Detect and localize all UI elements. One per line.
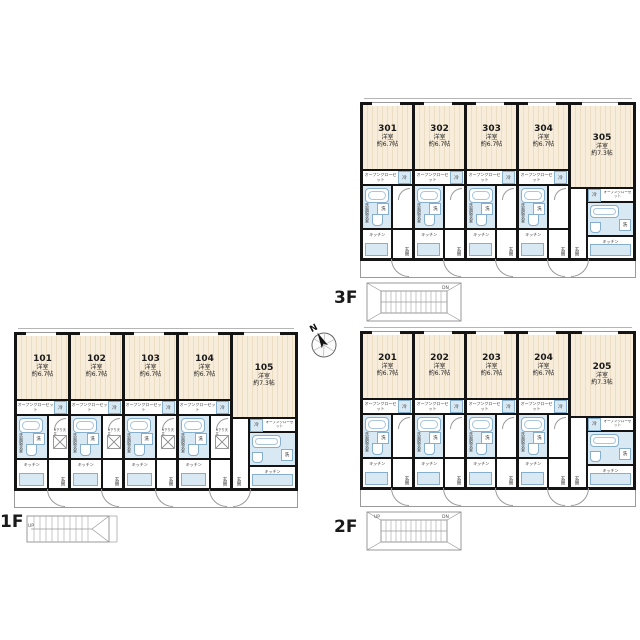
toilet: [424, 443, 435, 455]
unit-lower-half: 玄関 冷 オープンクローゼット 洗 キッチン: [571, 189, 633, 258]
closet-strip: オープンクローゼット 冷: [519, 400, 568, 415]
window: [582, 331, 618, 335]
refrigerator-box: 冷: [588, 418, 601, 431]
washer-label: 洗: [433, 435, 438, 441]
kitchen-row: キッチン 玄関: [519, 459, 568, 487]
open-closet-label: オープンクローゼット: [467, 173, 502, 181]
refrigerator-box: 冷: [450, 400, 463, 413]
refrigerator-box: 冷: [502, 400, 515, 413]
window: [528, 331, 556, 335]
bath-row: 洗面脱衣室 洗 ※下り天井: [467, 186, 516, 230]
kitchen-counter: [417, 243, 440, 256]
kitchen-row: キッチン 玄関: [17, 460, 68, 488]
refrigerator-label: 冷: [402, 175, 407, 181]
washroom-label: 洗面脱衣室: [364, 432, 370, 452]
building-2f: 201 洋室 約6.7帖 オープンクローゼット 冷 洗面脱衣室 洗 ※下り天井 …: [360, 331, 636, 490]
unit-corner: 205 洋室 約7.3帖 玄関 冷 オープンクローゼット 洗 キッ: [571, 334, 633, 487]
entrance-label: 玄関: [59, 477, 65, 486]
closet-strip: オープンクローゼット 冷: [519, 171, 568, 186]
open-closet-label: オープンクローゼット: [71, 403, 108, 411]
closet-strip: オープンクローゼット 冷: [125, 401, 176, 416]
refrigerator-label: 冷: [58, 405, 63, 411]
living-room: 103 洋室 約6.7帖: [125, 335, 176, 401]
x-box: [107, 435, 121, 449]
kitchen-label: キッチン: [17, 462, 47, 468]
unit-size: 約7.3帖: [591, 380, 613, 387]
unit-size: 約6.7帖: [140, 372, 162, 379]
unit: 301 洋室 約6.7帖 オープンクローゼット 冷 洗面脱衣室 洗 ※下り天井 …: [363, 105, 415, 258]
bathroom-area: 洗: [588, 203, 633, 237]
floor-label-3f: 3F: [334, 288, 357, 308]
unit-size: 約6.7帖: [32, 372, 54, 379]
staircase-2f: UP DN: [366, 511, 636, 555]
window: [372, 331, 400, 335]
kitchen-label: キッチン: [363, 461, 391, 467]
refrigerator-label: 冷: [506, 175, 511, 181]
bath-row: 洗面脱衣室 洗 ※下り天井: [125, 416, 176, 460]
window: [244, 332, 280, 336]
kitchen-area: キッチン: [17, 460, 49, 488]
entrance-label: 玄関: [403, 247, 409, 256]
toilet: [134, 444, 145, 456]
interior-door-arc: [554, 188, 566, 200]
bath-row: 洗面脱衣室 洗 ※下り天井: [415, 415, 464, 459]
unit-size: 約6.7帖: [481, 371, 503, 378]
living-room: 201 洋室 約6.7帖: [363, 334, 412, 400]
kitchen-area: キッチン: [125, 460, 157, 488]
toilet: [372, 443, 383, 455]
living-room: 202 洋室 約6.7帖: [415, 334, 464, 400]
closet-strip: オープンクローゼット 冷: [415, 171, 464, 186]
bathtub: [590, 205, 619, 218]
living-room: 302 洋室 約6.7帖: [415, 105, 464, 171]
bath-row: 洗面脱衣室 洗 ※下り天井: [519, 186, 568, 230]
window: [476, 331, 504, 335]
unit-size: 約6.7帖: [533, 142, 555, 149]
kitchen-label: キッチン: [519, 461, 547, 467]
toilet: [252, 452, 263, 463]
bathtub: [417, 417, 441, 432]
bathroom-area: 洗面脱衣室 洗: [467, 186, 497, 228]
unit-size: 約6.7帖: [429, 142, 451, 149]
refrigerator-box: 冷: [398, 171, 411, 184]
toilet: [424, 214, 435, 226]
stairs-up-label: UP: [374, 514, 380, 520]
entrance-label: 玄関: [573, 476, 579, 485]
entrance-label: 玄関: [113, 477, 119, 486]
bathroom-area: 洗面脱衣室 洗: [363, 415, 393, 457]
washer-label: 洗: [623, 222, 628, 228]
window: [188, 332, 218, 336]
washroom-label: 洗面脱衣室: [72, 433, 78, 453]
unit: 302 洋室 約6.7帖 オープンクローゼット 冷 洗面脱衣室 洗 ※下り天井 …: [415, 105, 467, 258]
refrigerator-box: 冷: [162, 401, 175, 414]
refrigerator-box: 冷: [450, 171, 463, 184]
open-closet-label: オープンクローゼット: [363, 402, 398, 410]
balcony-line: [364, 327, 632, 328]
bath-row: 洗面脱衣室 洗 ※下り天井: [363, 186, 412, 230]
bathroom-area: 洗: [588, 432, 633, 466]
refrigerator-label: 冷: [454, 404, 459, 410]
staircase-1f: UP: [26, 512, 298, 550]
open-closet-label: オープンクローゼット: [519, 402, 554, 410]
stairs-down-label: DN: [442, 285, 449, 291]
bath-row: 洗面脱衣室 洗 ※下り天井: [17, 416, 68, 460]
kitchen-area: キッチン: [588, 237, 633, 258]
bathtub: [469, 188, 493, 203]
closet-strip: 冷 オープンクローゼット: [588, 418, 633, 432]
kitchen-label: キッチン: [363, 232, 391, 238]
toilet: [188, 444, 199, 456]
kitchen-area: キッチン: [363, 230, 393, 258]
entrance-label: 玄関: [235, 477, 241, 486]
refrigerator-label: 冷: [454, 175, 459, 181]
unit-size: 約6.7帖: [533, 371, 555, 378]
entrance-label: 玄関: [507, 476, 513, 485]
bathtub: [19, 418, 43, 433]
closet-strip: 冷 オープンクローゼット: [588, 189, 633, 203]
toilet: [476, 443, 487, 455]
washroom-label: 洗面脱衣室: [520, 203, 526, 223]
kitchen-counter: [252, 474, 293, 486]
open-closet-label: オープンクローゼット: [17, 403, 54, 411]
unit-service-column: 冷 オープンクローゼット 洗 キッチン: [250, 419, 295, 488]
unit-size: 約6.7帖: [481, 142, 503, 149]
washroom-label: 洗面脱衣室: [416, 432, 422, 452]
kitchen-area: キッチン: [250, 467, 295, 488]
interior-door-arc: [502, 188, 514, 200]
x-box: [53, 435, 67, 449]
kitchen-counter: [521, 243, 544, 256]
washroom-label: 洗面脱衣室: [18, 433, 24, 453]
refrigerator-label: 冷: [166, 405, 171, 411]
washing-machine-box: 洗: [619, 219, 631, 231]
washroom-label: 洗面脱衣室: [416, 203, 422, 223]
toilet: [26, 444, 37, 456]
washroom-label: 洗面脱衣室: [468, 432, 474, 452]
bathtub: [469, 417, 493, 432]
window: [424, 102, 452, 106]
living-room: 303 洋室 約6.7帖: [467, 105, 516, 171]
bathroom-area: 洗面脱衣室 洗: [519, 186, 549, 228]
living-room: 205 洋室 約7.3帖: [571, 334, 633, 418]
washroom-label: 洗面脱衣室: [468, 203, 474, 223]
hallway: 玄関: [571, 418, 588, 487]
living-room: 301 洋室 約6.7帖: [363, 105, 412, 171]
toilet: [590, 222, 601, 233]
open-closet-label: オープンクローゼット: [264, 421, 295, 428]
unit: 202 洋室 約6.7帖 オープンクローゼット 冷 洗面脱衣室 洗 ※下り天井 …: [415, 334, 467, 487]
open-closet-label: オープンクローゼット: [363, 173, 398, 181]
unit: 303 洋室 約6.7帖 オープンクローゼット 冷 洗面脱衣室 洗 ※下り天井 …: [467, 105, 519, 258]
refrigerator-label: 冷: [254, 422, 259, 428]
washer-label: 洗: [381, 435, 386, 441]
unit: 304 洋室 約6.7帖 オープンクローゼット 冷 洗面脱衣室 洗 ※下り天井 …: [519, 105, 571, 258]
interior-door-arc: [450, 188, 462, 200]
balcony-line: [18, 328, 294, 329]
unit-size: 約6.7帖: [377, 371, 399, 378]
units-row: 101 洋室 約6.7帖 オープンクローゼット 冷 洗面脱衣室 洗 ※下り天井 …: [17, 335, 295, 488]
bath-row: 洗面脱衣室 洗 ※下り天井: [71, 416, 122, 460]
kitchen-area: キッチン: [467, 230, 497, 258]
kitchen-area: キッチン: [467, 459, 497, 487]
entrance-label: 玄関: [559, 247, 565, 256]
bath-row: 洗面脱衣室 洗 ※下り天井: [415, 186, 464, 230]
floorplan-canvas: 301 洋室 約6.7帖 オープンクローゼット 冷 洗面脱衣室 洗 ※下り天井 …: [0, 0, 640, 640]
bathroom-area: 洗面脱衣室 洗: [467, 415, 497, 457]
unit-corner: 305 洋室 約7.3帖 玄関 冷 オープンクローゼット 洗 キッ: [571, 105, 633, 258]
kitchen-label: キッチン: [415, 232, 443, 238]
refrigerator-box: 冷: [554, 171, 567, 184]
kitchen-counter: [365, 472, 388, 485]
unit-size: 約6.7帖: [86, 372, 108, 379]
bathroom-area: 洗面脱衣室 洗: [415, 415, 445, 457]
kitchen-label: キッチン: [125, 462, 155, 468]
closet-strip: オープンクローゼット 冷: [467, 400, 516, 415]
refrigerator-label: 冷: [592, 192, 597, 198]
kitchen-counter: [469, 472, 492, 485]
refrigerator-box: 冷: [588, 189, 601, 202]
kitchen-row: キッチン 玄関: [125, 460, 176, 488]
refrigerator-box: 冷: [108, 401, 121, 414]
bathroom-area: 洗面脱衣室 洗: [415, 186, 445, 228]
kitchen-area: キッチン: [71, 460, 103, 488]
refrigerator-label: 冷: [112, 405, 117, 411]
toilet: [372, 214, 383, 226]
interior-door-arc: [554, 417, 566, 429]
kitchen-label: キッチン: [415, 461, 443, 467]
units-row: 201 洋室 約6.7帖 オープンクローゼット 冷 洗面脱衣室 洗 ※下り天井 …: [363, 334, 633, 487]
toilet: [590, 451, 601, 462]
kitchen-area: キッチン: [363, 459, 393, 487]
kitchen-label: キッチン: [467, 232, 495, 238]
floor-label-1f: 1F: [0, 512, 23, 532]
bathtub: [521, 188, 545, 203]
bathtub: [417, 188, 441, 203]
kitchen-counter: [417, 472, 440, 485]
closet-strip: オープンクローゼット 冷: [415, 400, 464, 415]
living-room: 105 洋室 約7.3帖: [233, 335, 295, 419]
open-closet-label: オープンクローゼット: [125, 403, 162, 411]
kitchen-counter: [469, 243, 492, 256]
x-box: [215, 435, 229, 449]
unit: 201 洋室 約6.7帖 オープンクローゼット 冷 洗面脱衣室 洗 ※下り天井 …: [363, 334, 415, 487]
living-room: 304 洋室 約6.7帖: [519, 105, 568, 171]
toilet: [528, 443, 539, 455]
floor-label-2f: 2F: [334, 517, 357, 537]
kitchen-row: キッチン 玄関: [363, 459, 412, 487]
kitchen-row: キッチン 玄関: [467, 230, 516, 258]
washer-label: 洗: [433, 206, 438, 212]
washroom-label: 洗面脱衣室: [364, 203, 370, 223]
interior-door-arc: [398, 188, 410, 200]
refrigerator-label: 冷: [558, 175, 563, 181]
kitchen-counter: [590, 473, 631, 485]
toilet: [476, 214, 487, 226]
kitchen-area: キッチン: [415, 459, 445, 487]
compass-n-label: N: [308, 323, 319, 335]
interior-door-arc: [450, 417, 462, 429]
open-closet-label: オープンクローゼット: [519, 173, 554, 181]
kitchen-label: キッチン: [467, 461, 495, 467]
washer-label: 洗: [144, 436, 149, 442]
bathroom-area: 洗: [250, 433, 295, 467]
kitchen-row: キッチン 玄関: [415, 230, 464, 258]
closet-strip: 冷 オープンクローゼット: [250, 419, 295, 433]
living-room: 101 洋室 約6.7帖: [17, 335, 68, 401]
kitchen-counter: [590, 244, 631, 256]
interior-door-arc: [502, 417, 514, 429]
window: [528, 102, 556, 106]
stairs-up-label: UP: [28, 523, 34, 529]
closet-strip: オープンクローゼット 冷: [71, 401, 122, 416]
kitchen-row: キッチン 玄関: [415, 459, 464, 487]
washer-label: 洗: [485, 435, 490, 441]
unit: 104 洋室 約6.7帖 オープンクローゼット 冷 洗面脱衣室 洗 ※下り天井 …: [179, 335, 233, 488]
floor-plan-1f: 101 洋室 約6.7帖 オープンクローゼット 冷 洗面脱衣室 洗 ※下り天井 …: [14, 332, 298, 550]
bathroom-area: 洗面脱衣室 洗: [519, 415, 549, 457]
refrigerator-label: 冷: [592, 421, 597, 427]
kitchen-area: キッチン: [588, 466, 633, 487]
bathtub: [127, 418, 151, 433]
floor-plan-3f: 301 洋室 約6.7帖 オープンクローゼット 冷 洗面脱衣室 洗 ※下り天井 …: [360, 102, 636, 326]
unit-lower-half: 玄関 冷 オープンクローゼット 洗 キッチン: [571, 418, 633, 487]
unit: 203 洋室 約6.7帖 オープンクローゼット 冷 洗面脱衣室 洗 ※下り天井 …: [467, 334, 519, 487]
entrance-label: 玄関: [167, 477, 173, 486]
building-1f: 101 洋室 約6.7帖 オープンクローゼット 冷 洗面脱衣室 洗 ※下り天井 …: [14, 332, 298, 491]
bathtub: [365, 417, 389, 432]
toilet: [80, 444, 91, 456]
window: [80, 332, 110, 336]
window: [476, 102, 504, 106]
interior-door-arc: [398, 417, 410, 429]
living-room: 203 洋室 約6.7帖: [467, 334, 516, 400]
living-room: 102 洋室 約6.7帖: [71, 335, 122, 401]
kitchen-counter: [19, 473, 44, 486]
refrigerator-label: 冷: [402, 404, 407, 410]
washroom-label: 洗面脱衣室: [520, 432, 526, 452]
staircase-3f: DN: [366, 282, 636, 326]
kitchen-row: キッチン 玄関: [519, 230, 568, 258]
compass-icon: N: [302, 320, 346, 366]
washer-label: 洗: [623, 451, 628, 457]
washer-label: 洗: [285, 452, 290, 458]
washer-label: 洗: [537, 206, 542, 212]
bath-row: 洗面脱衣室 洗 ※下り天井: [179, 416, 230, 460]
refrigerator-box: 冷: [502, 171, 515, 184]
window: [424, 331, 452, 335]
refrigerator-box: 冷: [216, 401, 229, 414]
washroom-label: 洗面脱衣室: [126, 433, 132, 453]
entrance-label: 玄関: [455, 476, 461, 485]
closet-strip: オープンクローゼット 冷: [363, 400, 412, 415]
kitchen-area: キッチン: [519, 230, 549, 258]
kitchen-row: キッチン 玄関: [363, 230, 412, 258]
bathtub: [365, 188, 389, 203]
unit: 102 洋室 約6.7帖 オープンクローゼット 冷 洗面脱衣室 洗 ※下り天井 …: [71, 335, 125, 488]
closet-strip: オープンクローゼット 冷: [179, 401, 230, 416]
entrance-label: 玄関: [455, 247, 461, 256]
unit: 204 洋室 約6.7帖 オープンクローゼット 冷 洗面脱衣室 洗 ※下り天井 …: [519, 334, 571, 487]
kitchen-counter: [521, 472, 544, 485]
washer-label: 洗: [198, 436, 203, 442]
x-box: [161, 435, 175, 449]
floor-plan-2f: 201 洋室 約6.7帖 オープンクローゼット 冷 洗面脱衣室 洗 ※下り天井 …: [360, 331, 636, 555]
kitchen-area: キッチン: [415, 230, 445, 258]
toilet: [528, 214, 539, 226]
kitchen-counter: [127, 473, 152, 486]
bathtub: [181, 418, 205, 433]
open-closet-label: オープンクローゼット: [602, 420, 633, 427]
refrigerator-box: 冷: [250, 419, 263, 432]
kitchen-row: キッチン 玄関: [467, 459, 516, 487]
living-room: 104 洋室 約6.7帖: [179, 335, 230, 401]
kitchen-counter: [73, 473, 98, 486]
window: [26, 332, 56, 336]
refrigerator-label: 冷: [506, 404, 511, 410]
open-closet-label: オープンクローゼット: [415, 173, 450, 181]
kitchen-row: キッチン 玄関: [71, 460, 122, 488]
unit-corner: 105 洋室 約7.3帖 玄関 冷 オープンクローゼット 洗 キッ: [233, 335, 295, 488]
unit-lower-half: 玄関 冷 オープンクローゼット 洗 キッチン: [233, 419, 295, 488]
window: [372, 102, 400, 106]
entrance-label: 玄関: [559, 476, 565, 485]
bath-row: 洗面脱衣室 洗 ※下り天井: [467, 415, 516, 459]
open-closet-label: オープンクローゼット: [602, 191, 633, 198]
washer-label: 洗: [381, 206, 386, 212]
window: [134, 332, 164, 336]
washer-label: 洗: [90, 436, 95, 442]
unit-size: 約6.7帖: [377, 142, 399, 149]
balcony-line: [364, 98, 632, 99]
building-3f: 301 洋室 約6.7帖 オープンクローゼット 冷 洗面脱衣室 洗 ※下り天井 …: [360, 102, 636, 261]
entrance-label: 玄関: [221, 477, 227, 486]
entrance-label: 玄関: [403, 476, 409, 485]
refrigerator-box: 冷: [554, 400, 567, 413]
refrigerator-label: 冷: [558, 404, 563, 410]
refrigerator-label: 冷: [220, 405, 225, 411]
unit-size: 約6.7帖: [429, 371, 451, 378]
bathtub: [73, 418, 97, 433]
kitchen-row: キッチン 玄関: [179, 460, 230, 488]
washer-label: 洗: [537, 435, 542, 441]
kitchen-label: キッチン: [71, 462, 101, 468]
units-row: 301 洋室 約6.7帖 オープンクローゼット 冷 洗面脱衣室 洗 ※下り天井 …: [363, 105, 633, 258]
hallway: 玄関: [233, 419, 250, 488]
unit-size: 約7.3帖: [591, 151, 613, 158]
washing-machine-box: 洗: [281, 449, 293, 461]
hallway: 玄関: [571, 189, 588, 258]
washer-label: 洗: [36, 436, 41, 442]
bathroom-area: 洗面脱衣室 洗: [179, 416, 211, 458]
entrance-label: 玄関: [507, 247, 513, 256]
open-closet-label: オープンクローゼット: [467, 402, 502, 410]
refrigerator-box: 冷: [398, 400, 411, 413]
open-closet-label: オープンクローゼット: [415, 402, 450, 410]
bathroom-area: 洗面脱衣室 洗: [17, 416, 49, 458]
bathtub: [252, 435, 281, 448]
bathroom-area: 洗面脱衣室 洗: [363, 186, 393, 228]
kitchen-counter: [181, 473, 206, 486]
living-room: 204 洋室 約6.7帖: [519, 334, 568, 400]
closet-strip: オープンクローゼット 冷: [467, 171, 516, 186]
washing-machine-box: 洗: [619, 448, 631, 460]
window: [582, 102, 618, 106]
bath-row: 洗面脱衣室 洗 ※下り天井: [519, 415, 568, 459]
living-room: 305 洋室 約7.3帖: [571, 105, 633, 189]
kitchen-area: キッチン: [179, 460, 211, 488]
unit-size: 約6.7帖: [194, 372, 216, 379]
